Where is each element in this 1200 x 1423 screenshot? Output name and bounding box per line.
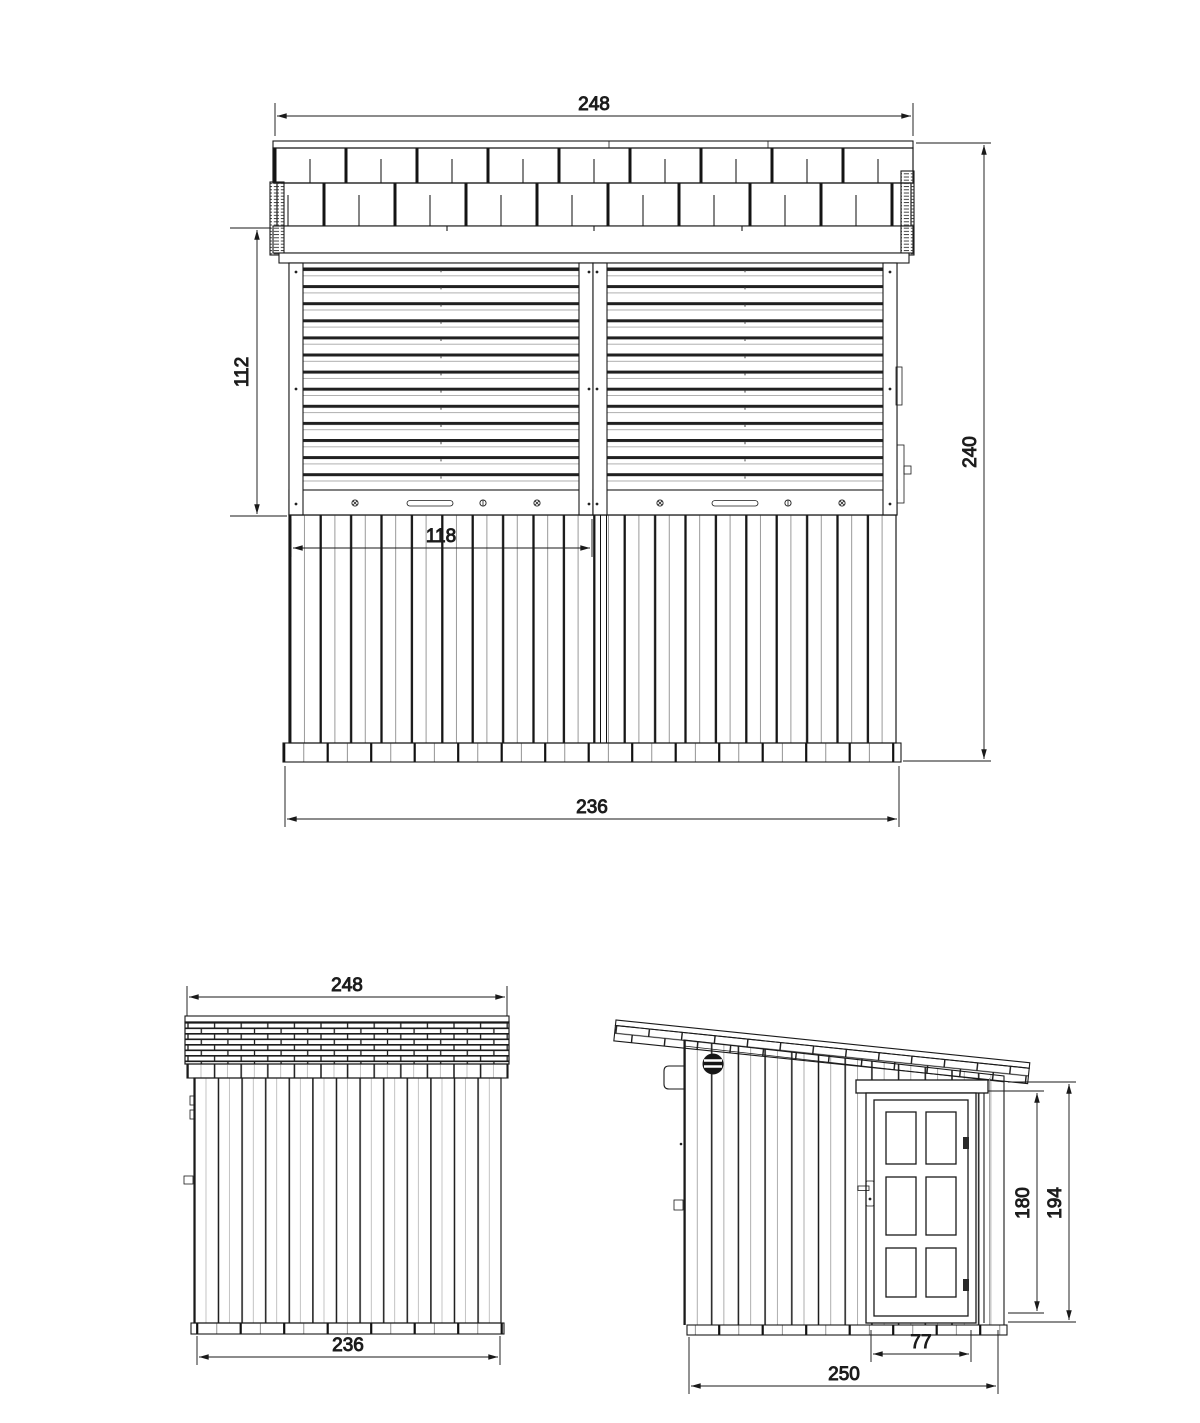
door-pane (926, 1248, 956, 1297)
door-pane (926, 1177, 956, 1235)
dimension-label: 248 (578, 94, 610, 115)
dim-front-shutter-height: 112 (230, 228, 287, 516)
side-elevation-view: 180 194 77 250 (614, 1020, 1076, 1394)
door-hinge (963, 1137, 969, 1149)
rear-wall-planks (184, 1078, 501, 1323)
roof-edge-cap-right (901, 171, 914, 255)
door-pane (886, 1177, 916, 1235)
screw-icon (480, 500, 486, 506)
dim-front-overall-height: 240 (903, 143, 991, 761)
eave-bracket (664, 1066, 684, 1089)
dim-front-base-width: 236 (285, 766, 899, 827)
rear-roof (185, 1016, 509, 1078)
roof-edge-cap-left (270, 182, 284, 255)
screw-icon (352, 500, 358, 506)
dimension-label: 77 (910, 1332, 931, 1353)
dimension-label: 194 (1045, 1187, 1066, 1219)
dim-rear-roof-width: 248 (187, 975, 507, 1017)
screw-icon (534, 500, 540, 506)
front-roof (270, 141, 914, 263)
dimension-label: 236 (332, 1335, 364, 1356)
side-base-skirt (687, 1325, 1007, 1335)
door-pane (886, 1248, 916, 1297)
drawing-sheet: 248 (0, 0, 1200, 1423)
dimension-label: 118 (426, 526, 456, 547)
rear-base-skirt (191, 1323, 504, 1334)
front-elevation-view: 248 (230, 94, 991, 827)
dimension-label: 236 (576, 797, 608, 818)
door-pane (886, 1112, 916, 1164)
door-hinge (963, 1279, 969, 1291)
dimension-label: 248 (331, 975, 363, 996)
technical-drawing-canvas: 248 (0, 0, 1200, 1423)
dim-rear-base-width: 236 (197, 1335, 500, 1365)
front-base-skirt (283, 743, 901, 762)
door-pane (926, 1112, 956, 1164)
screw-icon (785, 500, 791, 506)
dimension-label: 240 (960, 436, 981, 468)
dimension-label: 250 (828, 1364, 860, 1385)
dimension-label: 112 (232, 357, 253, 387)
screw-icon (839, 500, 845, 506)
roller-shutter-right (593, 263, 897, 515)
dim-front-roof-width: 248 (275, 94, 913, 136)
door-header (856, 1080, 988, 1093)
round-vent (703, 1054, 723, 1074)
front-wall-planks (289, 515, 896, 743)
side-latch (896, 367, 911, 503)
roller-shutter-left (289, 263, 593, 515)
dimension-label: 180 (1013, 1187, 1034, 1219)
corner-latch (674, 1200, 683, 1210)
screw-icon (657, 500, 663, 506)
dim-side-base-depth: 250 (689, 1330, 998, 1394)
rear-elevation-view: 248 236 (184, 975, 509, 1365)
side-door (856, 1078, 990, 1325)
